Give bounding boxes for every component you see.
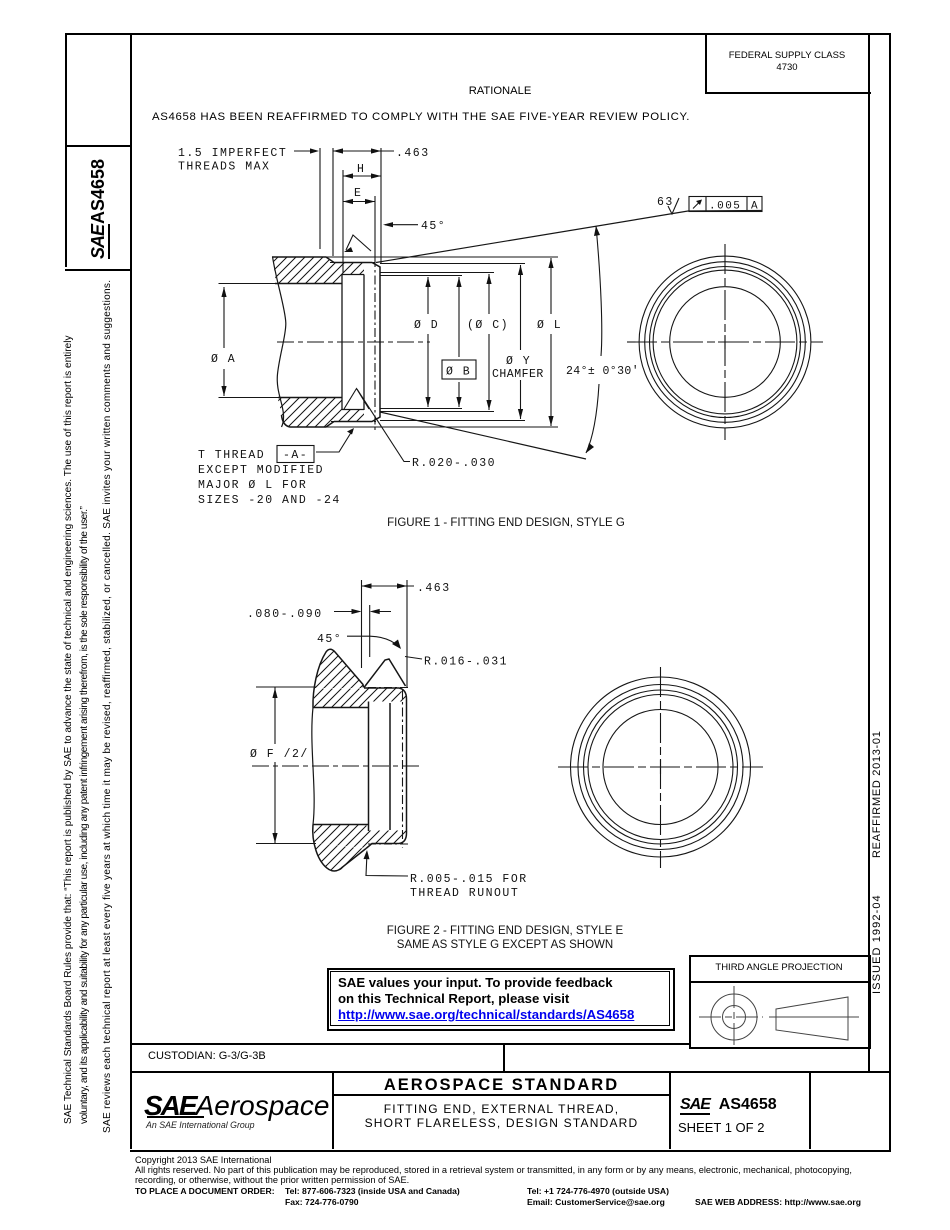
svg-text:R.020-.030: R.020-.030 bbox=[412, 457, 496, 470]
svg-text:-A-: -A- bbox=[283, 449, 308, 462]
svg-text:SAME AS STYLE G EXCEPT AS SHOW: SAME AS STYLE G EXCEPT AS SHOWN bbox=[397, 939, 613, 951]
svg-text:FIGURE 1 - FITTING END DESIGN,: FIGURE 1 - FITTING END DESIGN, STYLE G bbox=[387, 517, 625, 529]
svg-text:24°± 0°30': 24°± 0°30' bbox=[566, 365, 639, 378]
svg-text:.463: .463 bbox=[417, 582, 451, 595]
svg-text:THREAD RUNOUT: THREAD RUNOUT bbox=[410, 887, 519, 900]
svg-text:Ø F /2/: Ø F /2/ bbox=[250, 748, 309, 761]
svg-text:.080-.090: .080-.090 bbox=[247, 608, 323, 621]
svg-text:Ø Y: Ø Y bbox=[506, 355, 531, 368]
svg-text:FIGURE 2 - FITTING END DESIGN,: FIGURE 2 - FITTING END DESIGN, STYLE E bbox=[387, 925, 624, 937]
svg-text:T THREAD: T THREAD bbox=[198, 449, 265, 462]
svg-text:MAJOR Ø L FOR: MAJOR Ø L FOR bbox=[198, 479, 307, 492]
svg-text:SIZES -20 AND -24: SIZES -20 AND -24 bbox=[198, 494, 341, 507]
svg-text:EXCEPT MODIFIED: EXCEPT MODIFIED bbox=[198, 464, 324, 477]
svg-text:Ø D: Ø D bbox=[414, 319, 439, 332]
svg-text:63: 63 bbox=[657, 196, 674, 209]
svg-text:45°: 45° bbox=[421, 220, 446, 233]
svg-text:CHAMFER: CHAMFER bbox=[492, 368, 544, 381]
svg-text:E: E bbox=[354, 187, 362, 200]
svg-text:R.016-.031: R.016-.031 bbox=[424, 656, 508, 669]
svg-text:Ø A: Ø A bbox=[211, 353, 236, 366]
svg-text:.463: .463 bbox=[396, 147, 430, 160]
svg-text:(Ø C): (Ø C) bbox=[467, 319, 509, 332]
svg-text:Ø B: Ø B bbox=[446, 366, 471, 379]
svg-text:H: H bbox=[357, 163, 365, 176]
svg-text:1.5 IMPERFECT: 1.5 IMPERFECT bbox=[178, 147, 287, 160]
svg-text:45°: 45° bbox=[317, 633, 342, 646]
svg-text:Ø L: Ø L bbox=[537, 319, 562, 332]
svg-text:A: A bbox=[751, 201, 759, 213]
svg-text:THREADS MAX: THREADS MAX bbox=[178, 161, 270, 174]
svg-text:R.005-.015 FOR: R.005-.015 FOR bbox=[410, 873, 528, 886]
svg-text:.005: .005 bbox=[709, 201, 741, 213]
